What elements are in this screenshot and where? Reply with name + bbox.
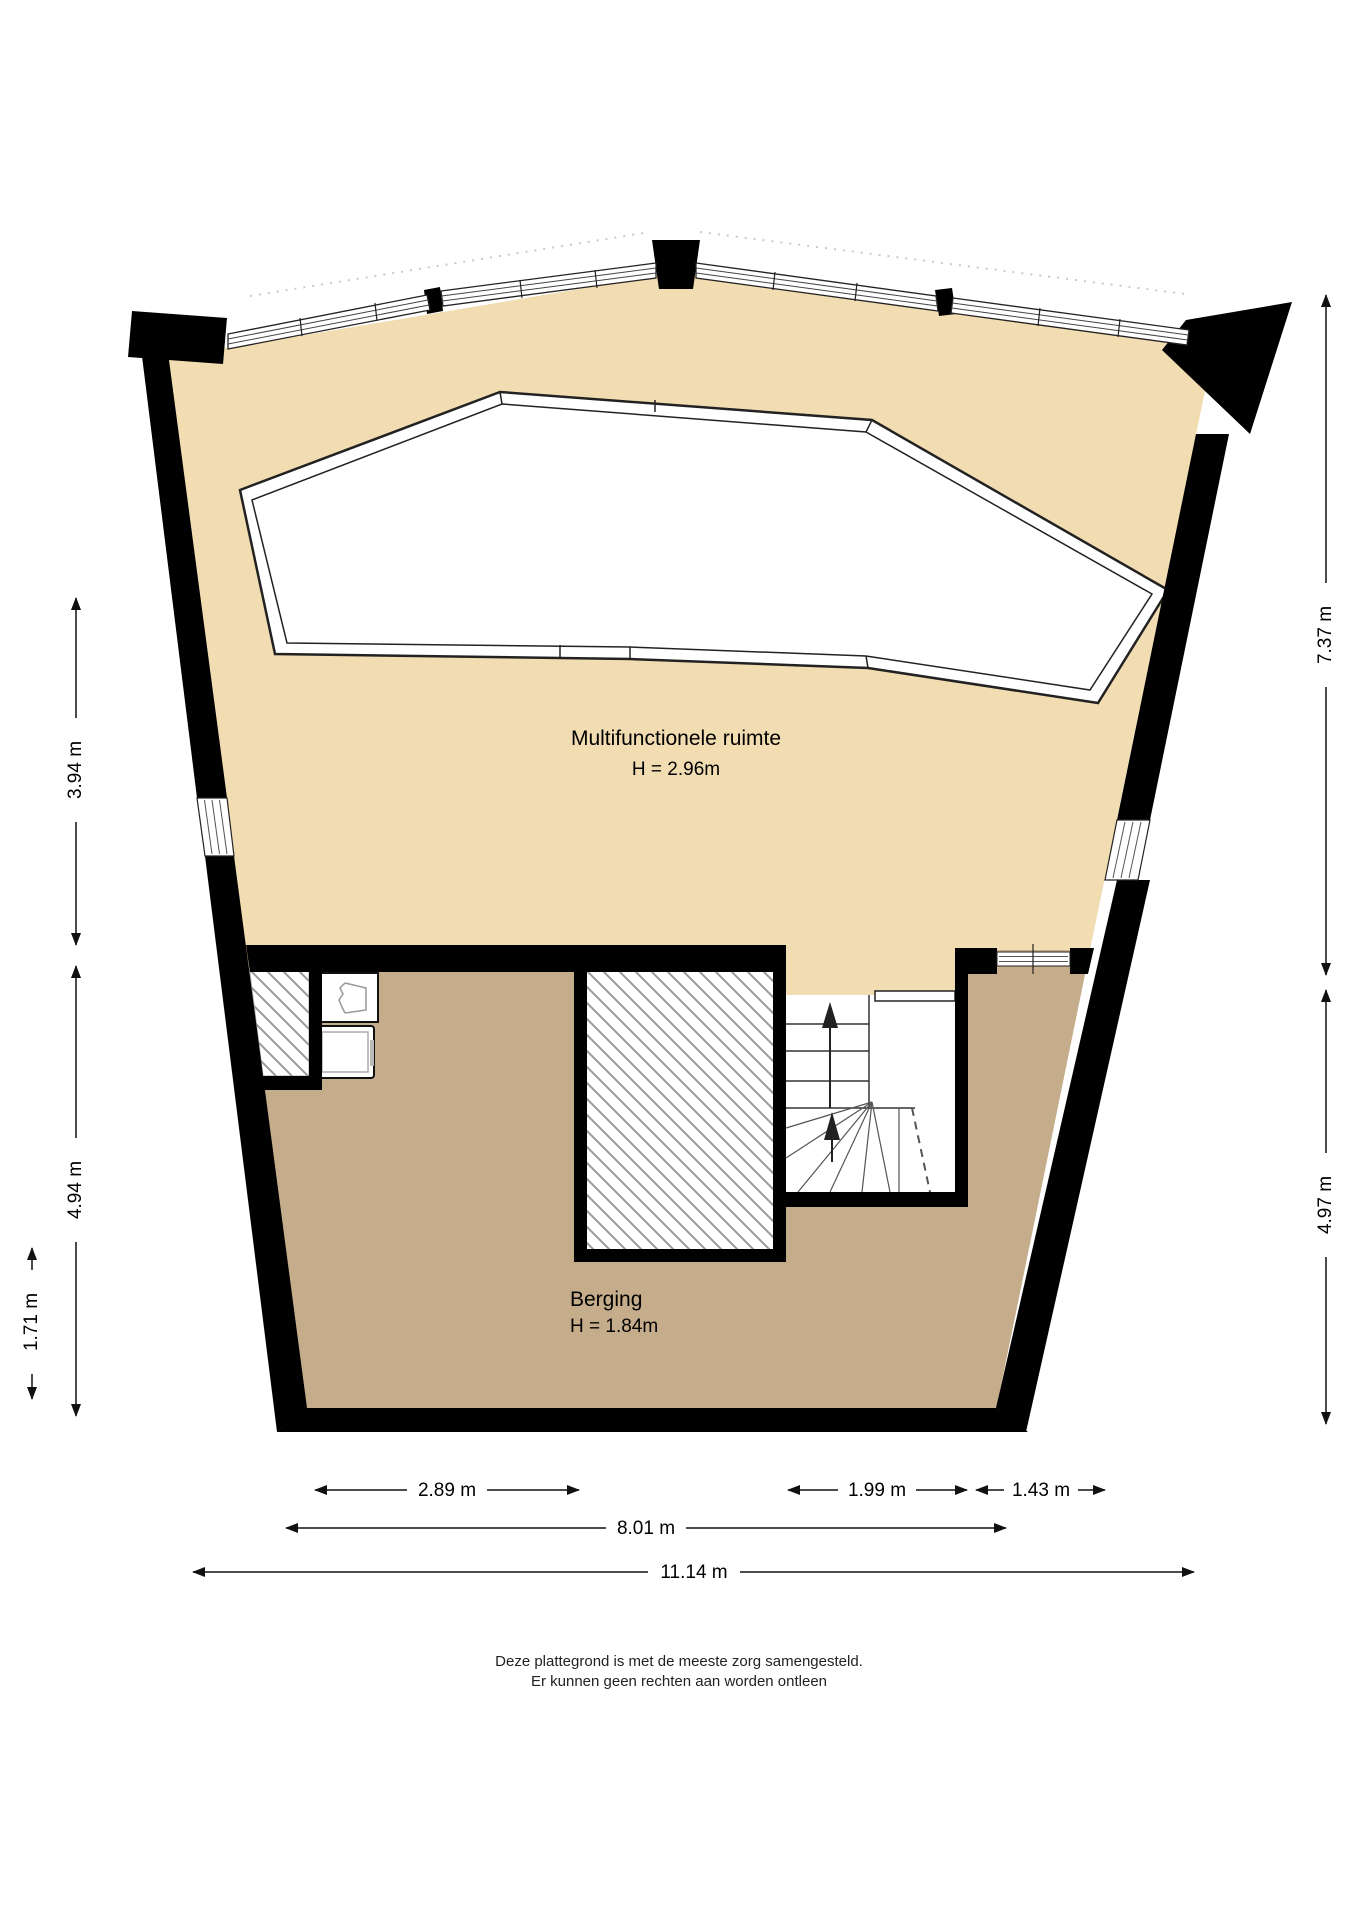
disclaimer-line-2: Er kunnen geen rechten aan worden ontlee… bbox=[531, 1673, 827, 1690]
room-name-multifunctionele: Multifunctionele ruimte bbox=[571, 727, 781, 750]
dim-label-3-94: 3.94 m bbox=[65, 741, 86, 799]
room-height-berging: H = 1.84m bbox=[570, 1316, 658, 1337]
floorplan-page: 3.94 m 4.94 m 1.71 m 7.37 m 4.97 m 2.89 … bbox=[0, 0, 1358, 1920]
washer-fixture bbox=[316, 1026, 374, 1078]
top-left-corner-block bbox=[128, 311, 227, 364]
roof-peak-block bbox=[652, 240, 700, 289]
disclaimer: Deze plattegrond is met de meeste zorg s… bbox=[495, 1653, 863, 1690]
dim-label-1-43: 1.43 m bbox=[1012, 1480, 1070, 1501]
stair-railing bbox=[875, 991, 955, 1001]
toilet-fixture bbox=[314, 973, 378, 1022]
toilet-room-wall-v bbox=[309, 965, 322, 1082]
toilet-room-wall-h bbox=[262, 1076, 322, 1090]
bottom-wall bbox=[277, 1408, 1028, 1432]
middle-wall bbox=[246, 945, 786, 972]
dim-label-8-01: 8.01 m bbox=[617, 1518, 675, 1539]
staircase bbox=[786, 991, 955, 1192]
dim-label-4-97: 4.97 m bbox=[1315, 1176, 1336, 1234]
dim-label-11-14: 11.14 m bbox=[660, 1562, 727, 1583]
dim-label-1-99: 1.99 m bbox=[848, 1480, 906, 1501]
door-end-wall bbox=[1070, 948, 1094, 974]
room-height-multifunctionele: H = 2.96m bbox=[632, 759, 720, 780]
hatched-zone-large bbox=[574, 957, 786, 1262]
floorplan-svg: 3.94 m 4.94 m 1.71 m 7.37 m 4.97 m 2.89 … bbox=[0, 0, 1358, 1920]
dim-label-7-37: 7.37 m bbox=[1315, 606, 1336, 664]
dim-label-2-89: 2.89 m bbox=[418, 1480, 476, 1501]
stair-room-wall bbox=[955, 950, 968, 1207]
dim-label-4-94: 4.94 m bbox=[65, 1161, 86, 1219]
room-name-berging: Berging bbox=[570, 1288, 642, 1311]
dim-label-1-71: 1.71 m bbox=[21, 1293, 42, 1351]
disclaimer-line-1: Deze plattegrond is met de meeste zorg s… bbox=[495, 1653, 863, 1670]
stair-bottom-wall bbox=[783, 1192, 968, 1207]
left-wall-window bbox=[197, 798, 234, 856]
